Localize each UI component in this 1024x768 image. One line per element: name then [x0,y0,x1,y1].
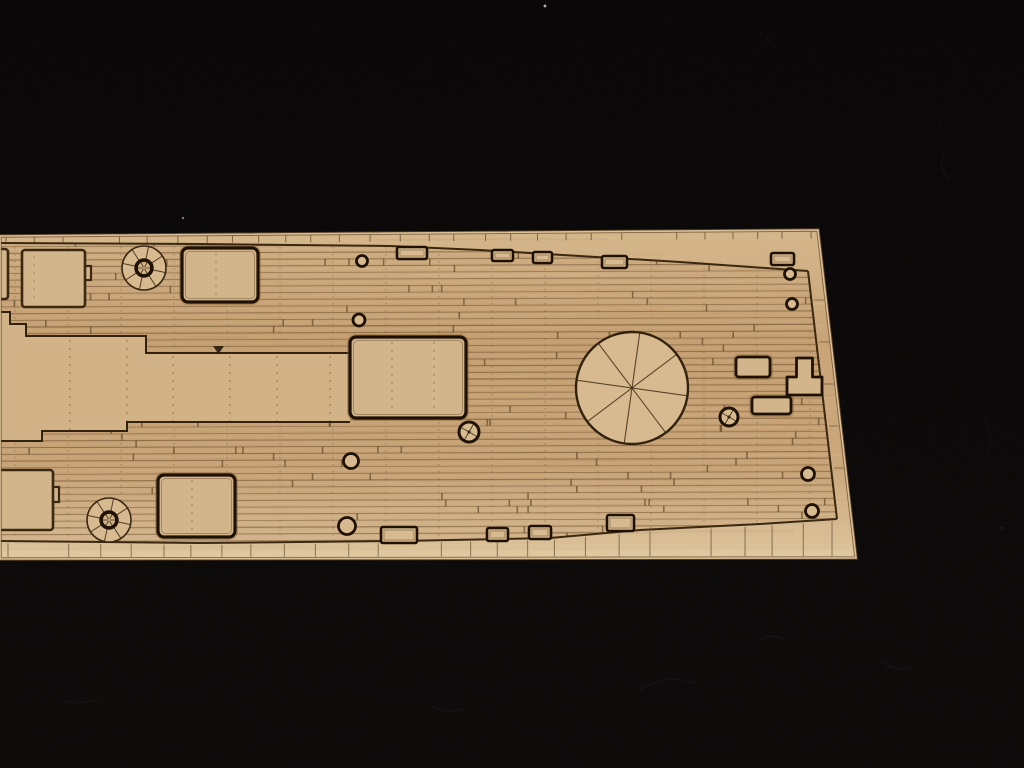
etched-ringbolt [339,518,356,535]
etched-ringbolt [353,314,365,326]
etched-fitting-topedge [492,250,513,261]
etched-fitting-bottomedge [529,526,551,539]
etched-fitting-right [750,395,793,416]
etched-fitting-topedge [397,247,427,259]
etched-hatch-bottomleft [156,473,237,539]
etched-ringbolt [806,505,819,518]
etched-fitting-bottomedge [607,515,634,531]
etched-fitting-topedge [533,252,552,263]
photo-of-wooden-deck-sheet [0,0,1024,768]
etched-ringbolt [357,256,368,267]
etched-hatch-topmid [180,246,260,304]
etched-winch [459,422,479,442]
etched-barbette-circle [576,332,688,444]
etched-fitting-topedge [602,256,627,268]
etched-ringbolt [787,299,798,310]
etched-ringbolt [785,269,796,280]
etched-deckhouse-bottomleft [0,470,59,530]
etched-fitting-bottomedge [381,527,417,543]
etched-fitting-bottomedge [487,528,508,541]
etched-fitting-topedge [771,253,794,265]
etched-fitting-right [734,355,772,379]
etched-capstan-fore [122,246,166,290]
photo-svg [0,0,1024,768]
etched-capstan-aft [87,498,131,542]
etched-winch [720,408,738,426]
etched-deckhouse-topleft [22,250,91,307]
etched-central-hatch [348,335,468,420]
etched-ringbolt [802,468,815,481]
etched-ringbolt [344,454,359,469]
